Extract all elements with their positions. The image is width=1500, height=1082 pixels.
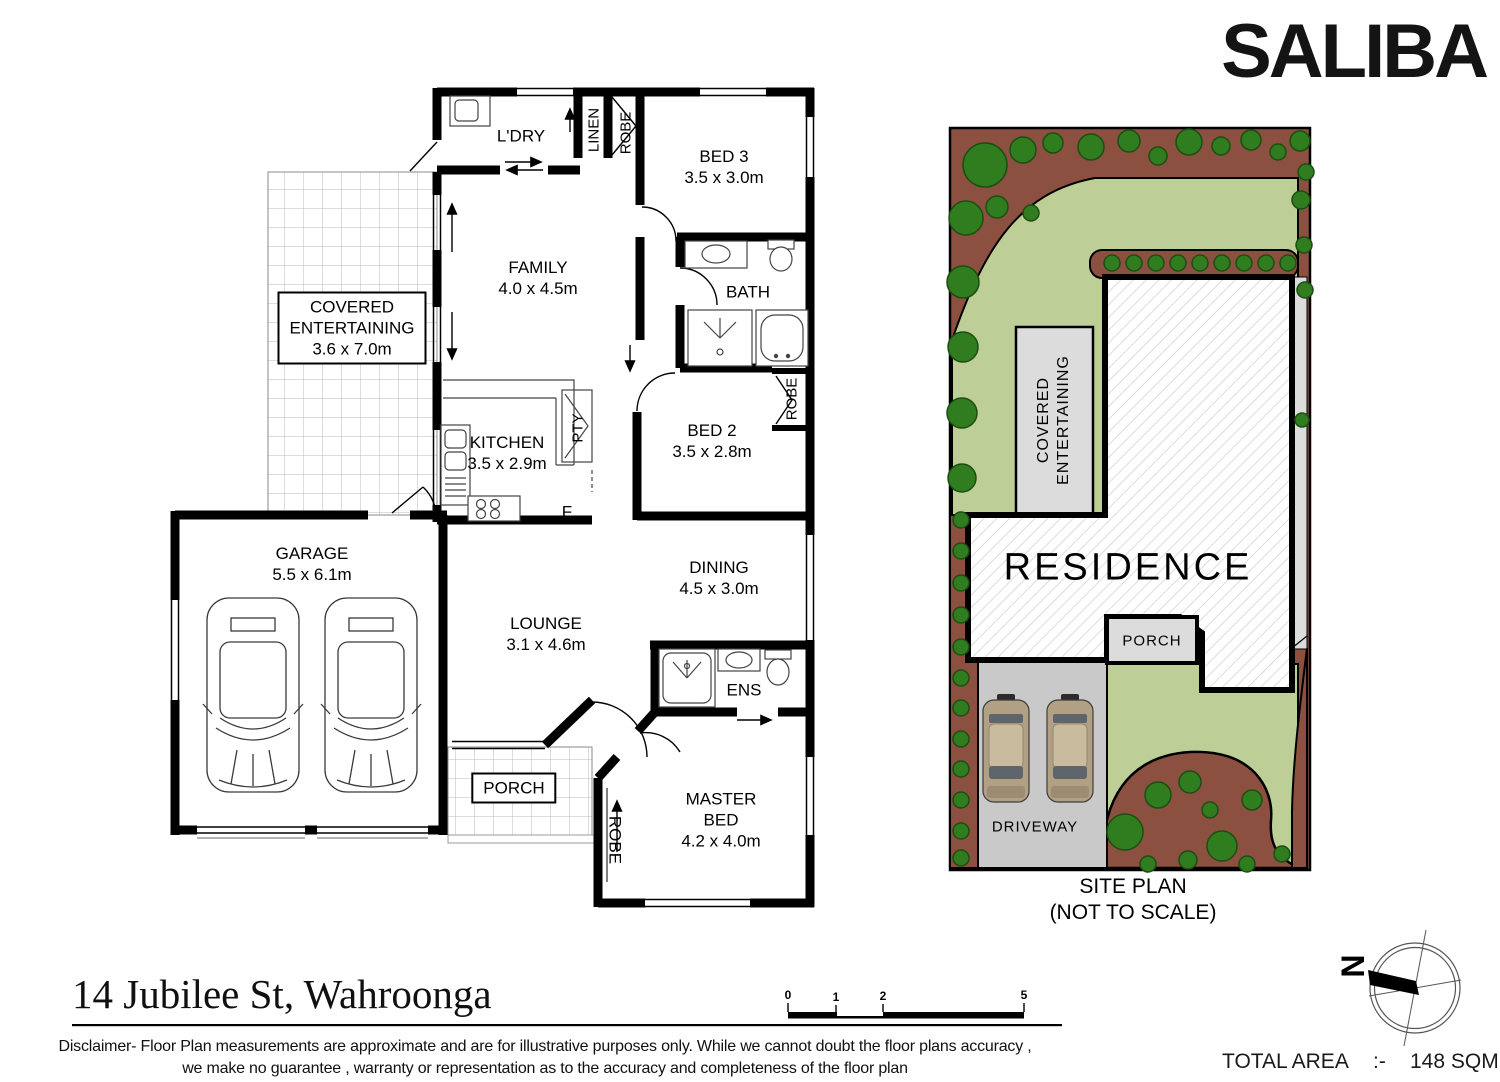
- site-plan-title: SITE PLAN (NOT TO SCALE): [1050, 874, 1217, 926]
- room-name-line1: MASTER: [681, 789, 760, 810]
- total-area-separator: :-: [1373, 1050, 1386, 1074]
- room-name: BED 3: [684, 146, 763, 167]
- room-label-pantry: PTY: [568, 413, 589, 442]
- saliba-logo: SALIBA: [1221, 14, 1486, 90]
- compass-icon: [1368, 930, 1461, 1046]
- laundry-tub-icon: [450, 96, 490, 126]
- room-label-garage: GARAGE 5.5 x 6.1m: [272, 543, 351, 585]
- room-name-line1: COVERED: [290, 297, 415, 318]
- room-label-porch: PORCH: [471, 773, 556, 804]
- room-label-ens: ENS: [727, 680, 762, 701]
- site-plan: [947, 128, 1314, 872]
- room-label-robe-master: ROBE: [605, 816, 626, 864]
- ens-vanity-icon: [718, 649, 760, 671]
- site-plan-title-line2: (NOT TO SCALE): [1050, 900, 1217, 926]
- room-label-bed2: BED 2 3.5 x 2.8m: [672, 420, 751, 462]
- site-ce-line1: COVERED: [1034, 355, 1054, 485]
- bath-vanity-icon: [685, 241, 747, 268]
- scale-tick-0: 0: [785, 988, 792, 1002]
- ens-shower-icon: [659, 649, 715, 707]
- room-label-covered-entertaining: COVERED ENTERTAINING 3.6 x 7.0m: [278, 292, 427, 365]
- scale-bar: [788, 1003, 1024, 1019]
- room-name: FAMILY: [498, 257, 577, 278]
- room-label-fridge: F: [562, 502, 572, 523]
- room-dims: 3.5 x 3.0m: [684, 167, 763, 188]
- bath-toilet-icon: [768, 240, 794, 271]
- room-dims: 4.5 x 3.0m: [679, 578, 758, 599]
- site-label-driveway: DRIVEWAY: [992, 817, 1078, 838]
- room-label-bath: BATH: [726, 282, 770, 303]
- scale-tick-2: 2: [880, 989, 887, 1003]
- compass-north-label: N: [1334, 954, 1371, 977]
- scale-tick-5: 5: [1021, 988, 1028, 1002]
- room-name: KITCHEN: [467, 432, 546, 453]
- property-address: 14 Jubilee St, Wahroonga: [72, 970, 492, 1018]
- room-label-bed3: BED 3 3.5 x 3.0m: [684, 146, 763, 188]
- ens-toilet-icon: [765, 650, 791, 685]
- kitchen-sink-icon: [441, 425, 470, 505]
- room-label-robe-bed2: ROBE: [782, 378, 803, 421]
- room-dims: 3.5 x 2.9m: [467, 453, 546, 474]
- garage-car-icon: [203, 598, 421, 792]
- room-dims: 5.5 x 6.1m: [272, 564, 351, 585]
- room-dims: 3.5 x 2.8m: [672, 441, 751, 462]
- site-plan-title-line1: SITE PLAN: [1050, 874, 1217, 900]
- scale-tick-1: 1: [833, 990, 840, 1004]
- room-dims: 4.0 x 4.5m: [498, 278, 577, 299]
- total-area-value: 148 SQM: [1410, 1050, 1499, 1074]
- room-label-linen: LINEN: [584, 108, 605, 152]
- room-label-family: FAMILY 4.0 x 4.5m: [498, 257, 577, 299]
- room-label-master-bed: MASTER BED 4.2 x 4.0m: [681, 789, 760, 852]
- room-label-dining: DINING 4.5 x 3.0m: [679, 557, 758, 599]
- bathtub-icon: [756, 310, 808, 366]
- room-name-line2: ENTERTAINING: [290, 318, 415, 339]
- room-dims: 3.6 x 7.0m: [290, 339, 415, 360]
- room-name: BED 2: [672, 420, 751, 441]
- page: SALIBA L'DRY LINEN ROBE BED 3 3.5 x 3.0m…: [0, 0, 1500, 1082]
- room-dims: 3.1 x 4.6m: [506, 634, 585, 655]
- site-label-residence: RESIDENCE: [1004, 558, 1253, 579]
- bath-shower-icon: [688, 310, 752, 366]
- site-label-porch: PORCH: [1122, 631, 1181, 652]
- room-label-kitchen: KITCHEN 3.5 x 2.9m: [467, 432, 546, 474]
- site-ce-line2: ENTERTAINING: [1054, 355, 1074, 485]
- room-name: LOUNGE: [506, 613, 585, 634]
- room-label-lounge: LOUNGE 3.1 x 4.6m: [506, 613, 585, 655]
- footer-divider: [72, 1024, 1062, 1026]
- room-name-line2: BED: [681, 810, 760, 831]
- room-dims: 4.2 x 4.0m: [681, 831, 760, 852]
- room-name: DINING: [679, 557, 758, 578]
- room-label-laundry: L'DRY: [497, 126, 545, 147]
- disclaimer-line2: we make no guarantee , warranty or repre…: [45, 1058, 1045, 1080]
- site-label-covered-entertaining: COVERED ENTERTAINING: [1034, 355, 1074, 485]
- stove-icon: [468, 496, 520, 521]
- room-label-robe-top: ROBE: [616, 112, 637, 155]
- disclaimer: Disclaimer- Floor Plan measurements are …: [45, 1036, 1045, 1080]
- total-area-label: TOTAL AREA: [1222, 1050, 1349, 1074]
- room-name: GARAGE: [272, 543, 351, 564]
- disclaimer-line1: Disclaimer- Floor Plan measurements are …: [45, 1036, 1045, 1058]
